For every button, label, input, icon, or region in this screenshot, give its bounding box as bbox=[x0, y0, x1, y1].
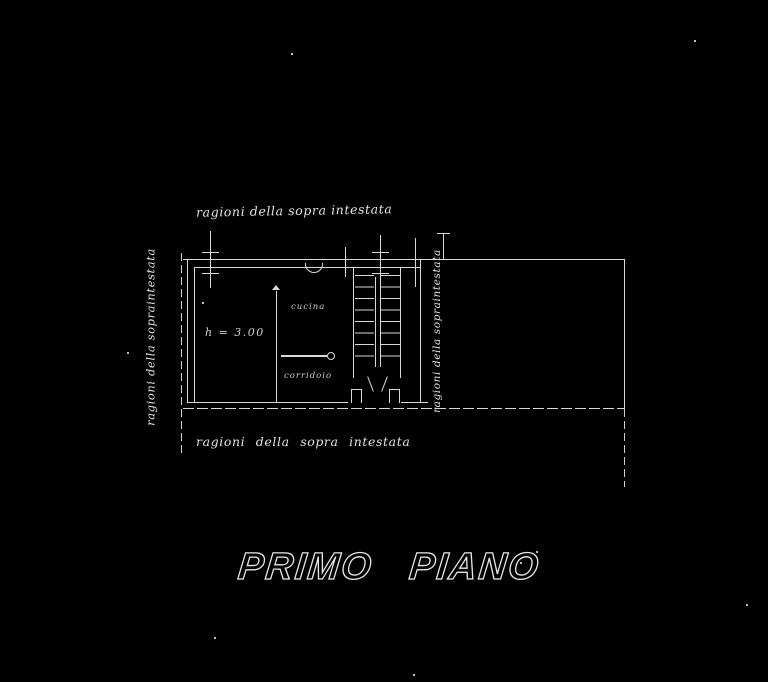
door-jamb-cap bbox=[389, 389, 400, 390]
door-knob-symbol bbox=[327, 352, 335, 360]
window-symbol bbox=[443, 233, 444, 259]
partition-arrow-icon bbox=[272, 285, 280, 290]
apartment-bottom-wall-right bbox=[401, 402, 428, 403]
apartment-bottom-wall-left bbox=[187, 402, 348, 403]
stair-direction-arrow-icon bbox=[381, 376, 388, 391]
plan-left-boundary-line bbox=[181, 253, 182, 457]
door-jamb bbox=[399, 389, 400, 403]
dust-speck bbox=[536, 551, 538, 553]
plan-right-wall bbox=[624, 259, 625, 409]
dust-speck bbox=[746, 604, 748, 606]
stair-divider-a bbox=[375, 277, 376, 367]
door-jamb bbox=[351, 389, 352, 403]
dust-speck bbox=[127, 352, 129, 354]
window-symbol bbox=[210, 231, 211, 288]
window-symbol-tick bbox=[202, 273, 219, 274]
dust-speck bbox=[202, 302, 204, 304]
top-note: ragioni della sopra intestata bbox=[196, 201, 393, 219]
stair-right-wall bbox=[400, 267, 401, 378]
stair-direction-arrow-icon bbox=[367, 376, 374, 391]
floorplan-sheet: ragioni della sopra intestata ragioni de… bbox=[0, 0, 768, 682]
dust-speck bbox=[694, 40, 696, 42]
main-room-height-label: h = 3.00 bbox=[205, 326, 265, 339]
dust-speck bbox=[291, 53, 293, 55]
plan-right-wall-extension bbox=[624, 409, 625, 487]
corridor-label: corridoio bbox=[284, 371, 332, 381]
floor-title: PRIMO PIANO bbox=[235, 546, 500, 596]
plan-left-wall-inner bbox=[194, 267, 195, 403]
window-symbol-tick bbox=[437, 233, 450, 234]
stair-treads-right bbox=[381, 275, 400, 367]
plan-top-wall-outer bbox=[183, 259, 624, 260]
right-note: ragioni della sopraintestata bbox=[431, 253, 443, 413]
dust-speck bbox=[413, 674, 415, 676]
corridor-partition bbox=[281, 355, 327, 357]
door-jamb-cap bbox=[351, 389, 362, 390]
main-room-partition bbox=[276, 291, 277, 403]
kitchen-label: cucina bbox=[291, 302, 325, 312]
stair-treads-left bbox=[355, 275, 374, 367]
window-symbol-tick bbox=[372, 273, 389, 274]
plan-left-wall-outer bbox=[187, 259, 188, 403]
dust-speck bbox=[214, 637, 216, 639]
window-symbol bbox=[345, 247, 346, 277]
plan-bottom-boundary-line bbox=[183, 408, 625, 409]
window-symbol bbox=[415, 238, 416, 287]
apartment-right-wall bbox=[420, 259, 421, 403]
stair-left-wall bbox=[353, 267, 354, 378]
window-symbol bbox=[380, 235, 381, 299]
door-swing-arc bbox=[305, 263, 323, 273]
door-jamb bbox=[389, 389, 390, 403]
door-jamb bbox=[361, 389, 362, 403]
dust-speck bbox=[520, 562, 522, 564]
left-note: ragioni della sopraintestata bbox=[144, 245, 158, 430]
window-symbol-tick bbox=[202, 252, 219, 253]
window-symbol-tick bbox=[372, 252, 389, 253]
bottom-note: ragioni della sopra intestata bbox=[196, 434, 410, 449]
